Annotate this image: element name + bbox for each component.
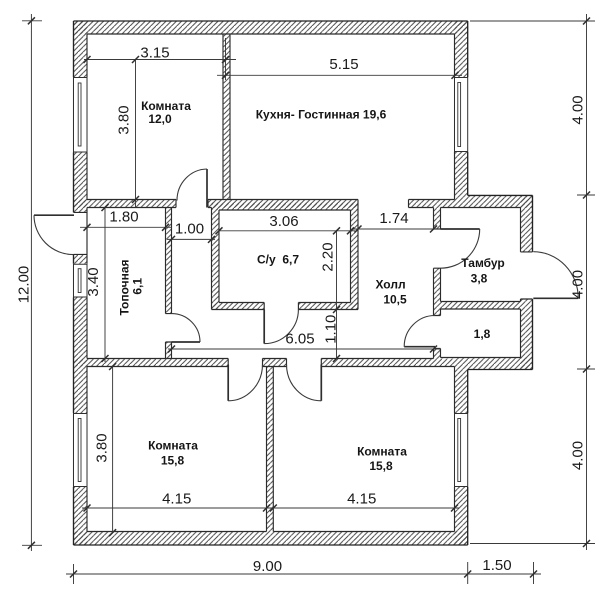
svg-text:6.05: 6.05 <box>285 331 314 348</box>
svg-text:3.06: 3.06 <box>269 213 298 230</box>
svg-text:2.20: 2.20 <box>319 242 336 271</box>
svg-text:3.15: 3.15 <box>140 45 169 62</box>
svg-text:5.15: 5.15 <box>329 56 358 73</box>
svg-text:Кухня- Гостинная 19,6: Кухня- Гостинная 19,6 <box>256 108 387 122</box>
svg-text:Комната: Комната <box>141 99 191 113</box>
svg-text:3.40: 3.40 <box>85 267 102 296</box>
svg-text:4.00: 4.00 <box>570 441 587 470</box>
svg-text:12,0: 12,0 <box>148 112 172 126</box>
svg-text:15,8: 15,8 <box>161 454 185 468</box>
svg-text:Холл: Холл <box>375 278 405 292</box>
svg-text:Комната: Комната <box>148 439 198 453</box>
svg-text:3,8: 3,8 <box>471 272 488 286</box>
svg-text:Комната: Комната <box>357 445 407 459</box>
svg-text:1.80: 1.80 <box>109 209 138 226</box>
svg-text:12.00: 12.00 <box>16 266 33 304</box>
svg-text:4.00: 4.00 <box>570 270 587 299</box>
svg-text:1.74: 1.74 <box>379 210 408 227</box>
svg-text:1.00: 1.00 <box>175 221 204 238</box>
svg-text:Топочная: Топочная <box>117 259 131 315</box>
svg-text:3.80: 3.80 <box>94 433 111 462</box>
svg-text:9.00: 9.00 <box>253 558 282 575</box>
svg-text:4.15: 4.15 <box>347 491 376 508</box>
svg-text:6,1: 6,1 <box>131 278 145 295</box>
svg-text:15,8: 15,8 <box>369 459 393 473</box>
svg-text:10,5: 10,5 <box>383 293 407 307</box>
svg-text:1.10: 1.10 <box>322 315 339 344</box>
svg-text:3.80: 3.80 <box>116 105 133 134</box>
svg-text:4.15: 4.15 <box>162 491 191 508</box>
svg-text:1,8: 1,8 <box>474 327 491 341</box>
svg-text:С/у 6,7: С/у 6,7 <box>257 253 299 267</box>
svg-text:4.00: 4.00 <box>570 95 587 124</box>
svg-text:Тамбур: Тамбур <box>461 256 505 270</box>
svg-text:1.50: 1.50 <box>482 557 511 574</box>
